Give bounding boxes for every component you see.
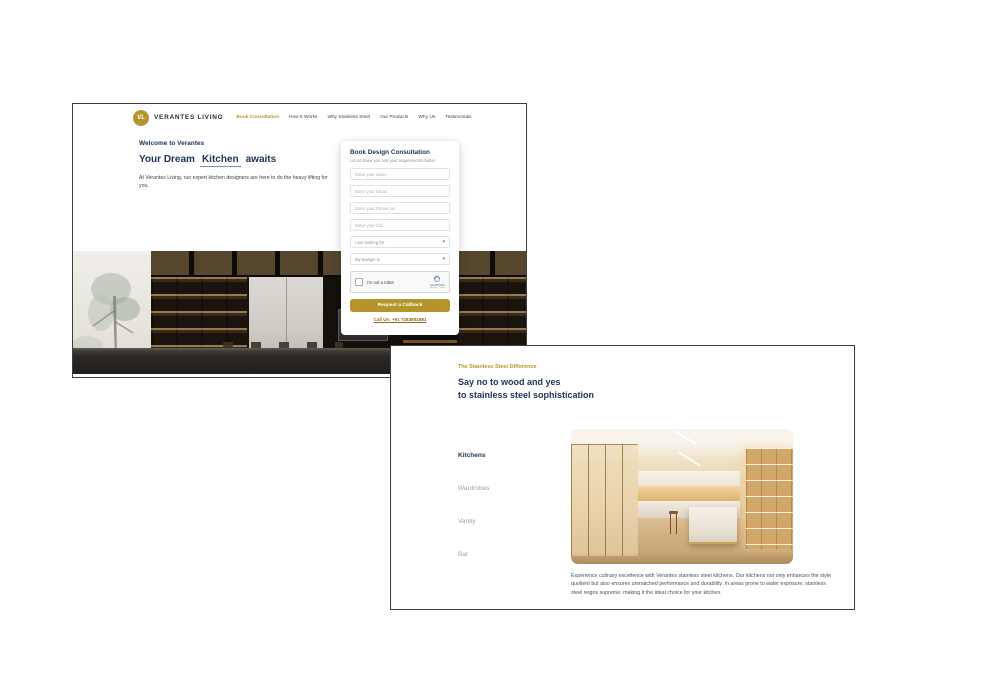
form-title: Book Design Consultation [350,149,450,156]
hero-description: At Verantes Living, our expert kitchen d… [139,174,337,190]
category-menu: Kitchens Wardrobes Vanity Bar [458,452,490,584]
nav-our-products[interactable]: Our Products [380,115,408,120]
looking-for-select[interactable]: I am looking for ▾ [350,236,450,248]
nav-why-us[interactable]: Why Us [418,115,435,120]
recaptcha-widget: I'm not a robot reCAPTCHA Privacy - Term… [350,271,450,293]
lit-backsplash [638,486,740,501]
recaptcha-privacy-terms[interactable]: Privacy - Terms [430,287,445,289]
hero-title-suffix: awaits [246,154,277,165]
recaptcha-label: I'm not a robot [367,280,394,285]
landing-page-window: VL VERANTES LIVING Book Consultation How… [72,103,527,378]
hero-title-prefix: Your Dream [139,154,195,165]
glass-partition [571,444,638,556]
products-section-window: The Stainless Steel Difference Say no to… [390,345,855,610]
stool-seat [669,511,678,514]
section-eyebrow: The Stainless Steel Difference [458,364,537,370]
section-heading-line2: to stainless steel sophistication [458,389,594,402]
brand-logo-icon[interactable]: VL [133,110,149,126]
nav-testimonials[interactable]: Testimonials [445,115,471,120]
hero-copy: Welcome to Verantes Your DreamKitchenawa… [139,140,344,190]
hero-title-rotating-word: Kitchen [200,154,241,167]
request-callback-button[interactable]: Request a Callback [350,299,450,312]
category-kitchens[interactable]: Kitchens [458,452,490,459]
stool-legs [670,514,677,534]
category-bar[interactable]: Bar [458,551,490,558]
recaptcha-branding: reCAPTCHA Privacy - Terms [430,275,445,289]
brand-monogram: VL [137,115,145,121]
name-field[interactable] [350,168,450,180]
upper-glass-cabinets [151,251,526,277]
budget-value: My Budget is [355,257,380,262]
hero-title: Your DreamKitchenawaits [139,154,344,167]
main-nav: Book Consultation How It Works Why Stain… [236,115,471,120]
category-vanity[interactable]: Vanity [458,518,490,525]
nav-how-it-works[interactable]: How It Works [289,115,317,120]
product-kitchen-image [571,429,793,564]
section-heading: Say no to wood and yes to stainless stee… [458,376,594,401]
recaptcha-checkbox[interactable] [355,278,363,286]
form-subtitle: Let us know you and your requirements be… [350,158,450,163]
hero-eyebrow: Welcome to Verantes [139,140,344,147]
lit-shelf-wall [746,448,793,549]
brand-name: VERANTES LIVING [154,114,223,121]
kitchen-island [689,507,738,543]
lit-glass-cabinet-right [457,277,526,350]
chevron-down-icon: ▾ [442,240,445,245]
category-description: Experience culinary excellence with Vera… [571,572,837,597]
email-field[interactable] [350,185,450,197]
floor-shadow [571,552,793,564]
call-us-link[interactable]: Call Us: +91 7283801881 [350,317,450,322]
nav-book-consultation[interactable]: Book Consultation [236,115,279,120]
city-field[interactable] [350,219,450,231]
nav-why-stainless-steel[interactable]: Why Stainless Steel [327,115,370,120]
consultation-form-card: Book Design Consultation Let us know you… [341,141,459,335]
white-cabinet-column [247,277,325,350]
cabinet-wall [151,251,526,350]
section-heading-line1: Say no to wood and yes [458,376,594,389]
site-header: VL VERANTES LIVING Book Consultation How… [73,104,526,131]
lit-glass-cabinet-left [151,277,247,350]
phone-field[interactable] [350,202,450,214]
recaptcha-icon [433,275,441,283]
upper-cabinets [638,471,740,486]
looking-for-value: I am looking for [355,240,384,245]
budget-select[interactable]: My Budget is ▾ [350,253,450,265]
chevron-down-icon: ▾ [442,257,445,262]
category-wardrobes[interactable]: Wardrobes [458,485,490,492]
